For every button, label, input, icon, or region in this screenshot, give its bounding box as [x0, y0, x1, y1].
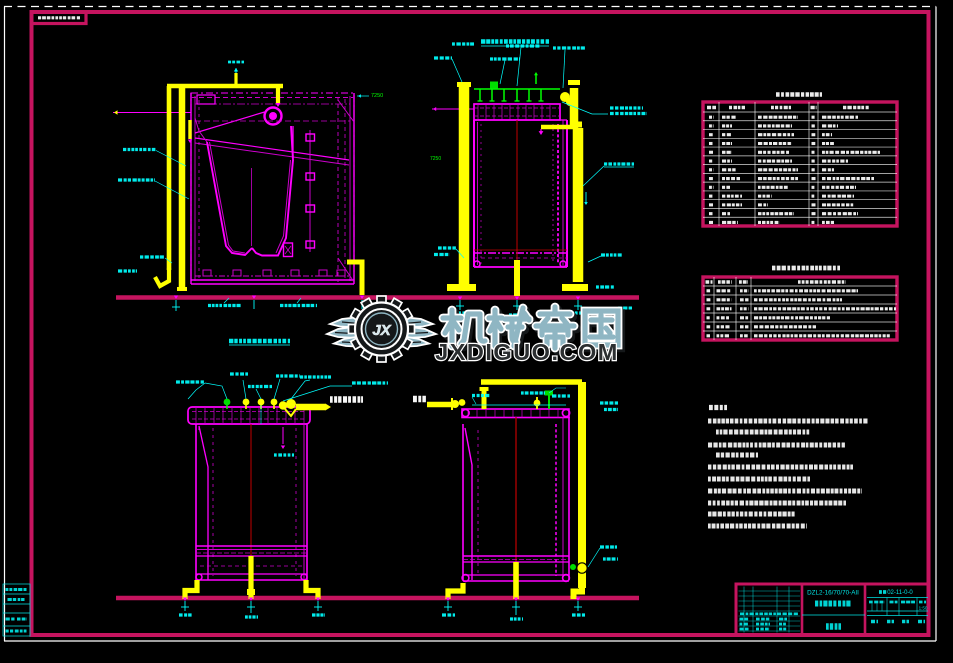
svg-text:02-11-0-0: 02-11-0-0: [887, 590, 913, 596]
svg-text:JX: JX: [372, 322, 391, 339]
svg-text:7250: 7250: [430, 156, 441, 162]
svg-text:DZL2-16/70/70-AII: DZL2-16/70/70-AII: [807, 590, 859, 597]
svg-text:1:50: 1:50: [919, 606, 928, 611]
svg-text:JXDIGUO.COM: JXDIGUO.COM: [435, 339, 619, 365]
svg-text:7250: 7250: [371, 93, 383, 99]
